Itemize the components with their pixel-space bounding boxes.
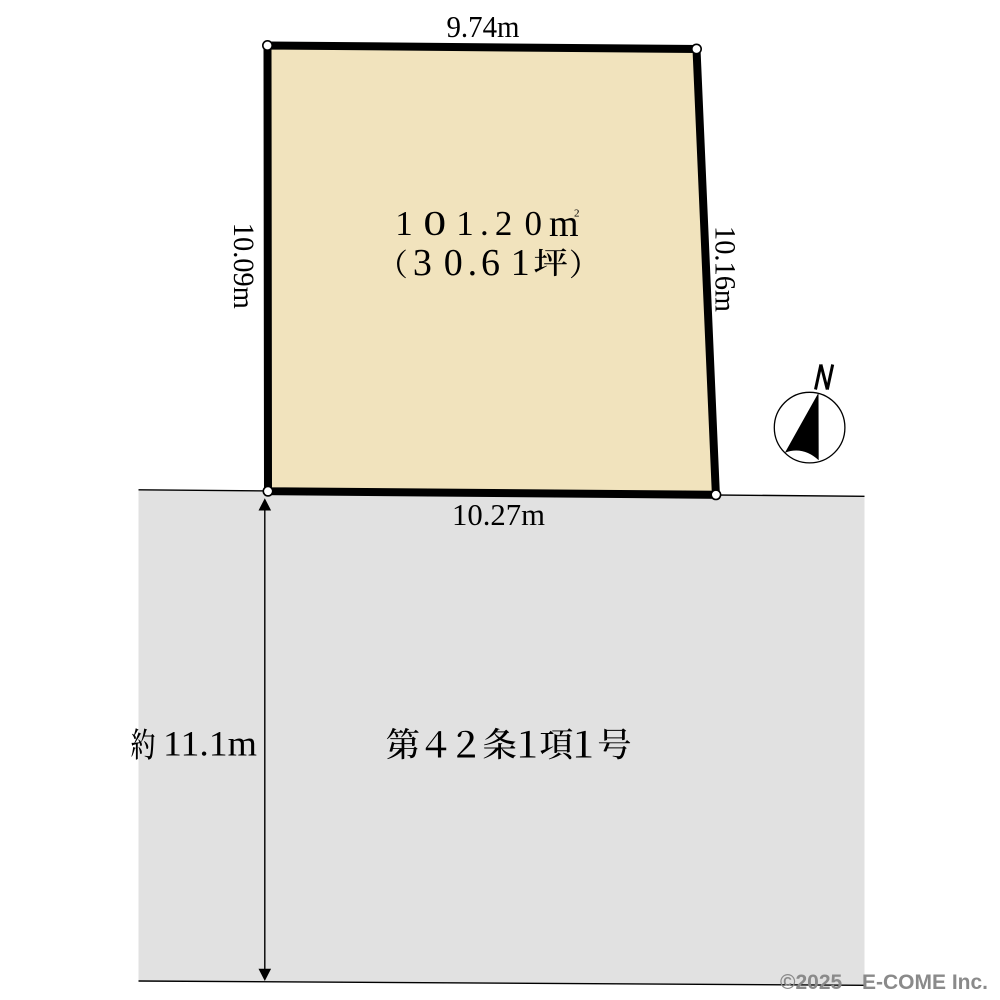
svg-text:10.09m: 10.09m [227, 223, 260, 309]
svg-text:1: 1 [456, 204, 474, 243]
svg-text:2: 2 [574, 208, 580, 220]
svg-text:.: . [468, 242, 478, 284]
svg-text:0: 0 [524, 204, 542, 243]
svg-text:1: 1 [395, 204, 413, 243]
svg-text:0: 0 [444, 242, 463, 284]
svg-text:E-COME Inc.: E-COME Inc. [862, 971, 988, 994]
svg-text:.: . [480, 204, 489, 243]
svg-text:10.27m: 10.27m [452, 497, 545, 532]
svg-text:2: 2 [495, 204, 513, 243]
svg-text:1: 1 [511, 242, 530, 284]
svg-text:9.74m: 9.74m [447, 9, 520, 44]
svg-text:11.1m: 11.1m [163, 724, 257, 764]
svg-text:6: 6 [481, 242, 500, 284]
svg-text:3: 3 [413, 242, 432, 284]
svg-text:10.16m: 10.16m [709, 226, 742, 312]
svg-text:©2025: ©2025 [780, 971, 843, 994]
svg-text:0: 0 [423, 204, 446, 243]
